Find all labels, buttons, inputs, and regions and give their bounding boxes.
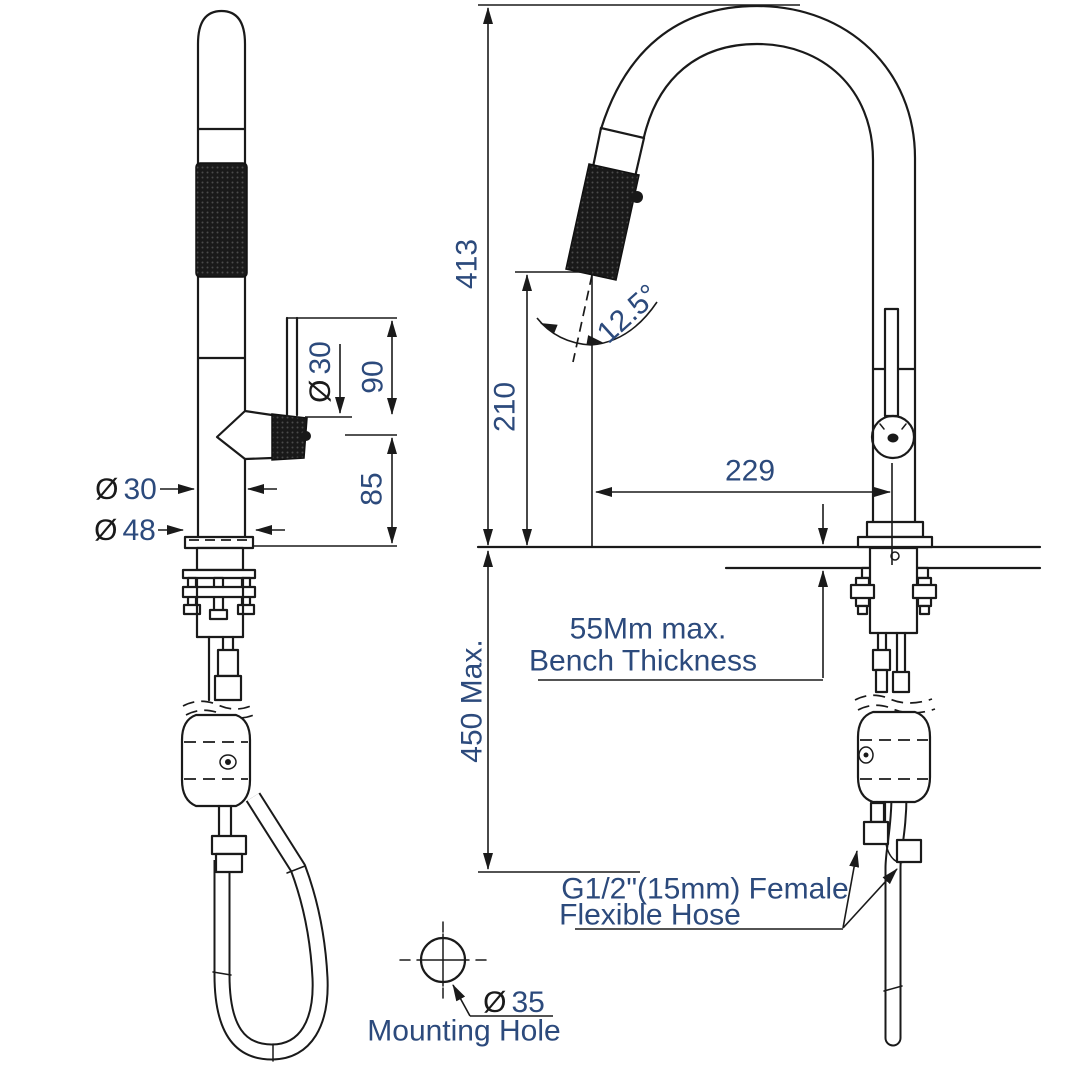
hose-weight [858,712,930,802]
dimension-lines [158,8,897,929]
mounting-leader [453,985,470,1016]
riser-base-flange [858,522,932,547]
label-85: 85 [356,472,389,505]
extension-lines [253,5,892,872]
hose-connector-left [864,822,888,844]
handle-pin [885,309,898,416]
label-bench-note-1: 55Mm max. [570,613,727,646]
left-view-hand-spray [182,11,320,1061]
label-mounting-hole: Mounting Hole [367,1015,560,1048]
angle-arc-arrow-left [538,318,558,334]
mounting-hardware [183,537,256,718]
label-bench-note-2: Bench Thickness [529,645,757,678]
label-90: 90 [357,360,390,393]
label-413: 413 [451,239,484,289]
riser-handle [872,309,914,458]
diameter-symbol: Ø [304,380,337,403]
bench-lines [478,547,1040,568]
label-dia48: Ø48 [94,514,156,547]
hose-connector-right [897,840,921,862]
label-229: 229 [725,455,775,488]
aerator-button [301,431,311,441]
under-bench-assembly [851,548,936,1038]
label-angle-12-5: 12.5° [591,278,665,350]
label-450-max: 450 Max. [456,639,489,762]
technical-drawing-page: 413 210 450 Max. 229 12.5° 90 85 Ø30 Ø30… [0,0,1080,1080]
diameter-symbol: Ø [95,473,118,506]
dimension-labels: 413 210 450 Max. 229 12.5° 90 85 Ø30 Ø30… [94,239,849,1048]
hose-weight [182,715,250,872]
side-outlet [217,318,311,460]
wand-knurled-grip [196,163,247,277]
spout-knurled-spray-head [566,164,639,280]
label-hose-note-2: Flexible Hose [559,899,741,932]
faucet-dimension-drawing: 413 210 450 Max. 229 12.5° 90 85 Ø30 Ø30… [0,0,1080,1080]
spray-head-button [631,191,643,203]
diameter-symbol: Ø [94,514,117,547]
label-210: 210 [489,382,522,432]
label-dia30-side: Ø30 [304,341,337,403]
label-dia30: Ø30 [95,473,157,506]
